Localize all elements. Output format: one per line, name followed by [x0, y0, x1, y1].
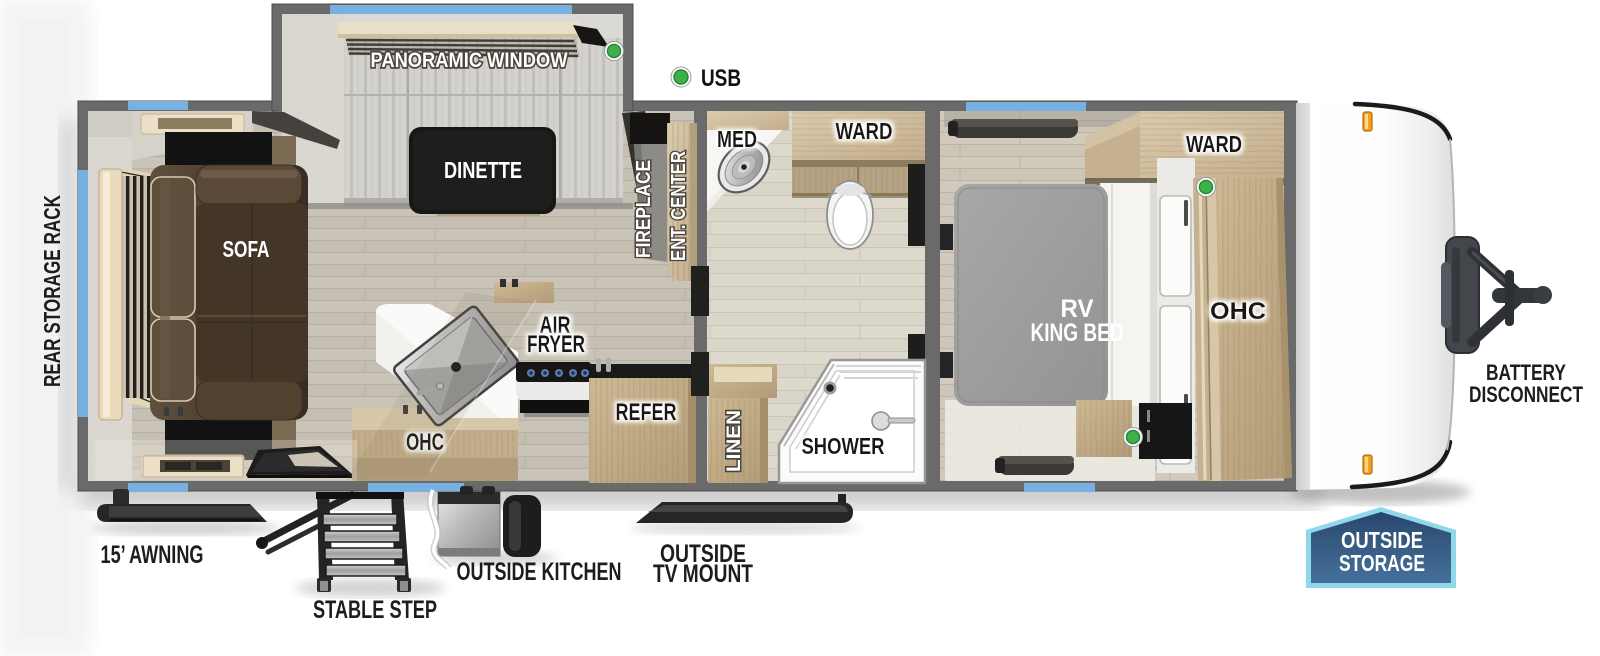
- svg-text:TV MOUNT: TV MOUNT: [653, 560, 753, 588]
- svg-text:OHC: OHC: [1210, 298, 1266, 325]
- svg-text:MED: MED: [717, 126, 757, 152]
- svg-text:PANORAMIC WINDOW: PANORAMIC WINDOW: [371, 49, 568, 72]
- svg-text:REFER: REFER: [616, 399, 677, 426]
- svg-text:15’ AWNING: 15’ AWNING: [101, 541, 204, 569]
- svg-text:DINETTE: DINETTE: [444, 157, 522, 183]
- svg-text:KING BED: KING BED: [1031, 319, 1124, 347]
- svg-text:WARD: WARD: [1186, 131, 1242, 157]
- svg-text:USB: USB: [701, 65, 741, 92]
- svg-text:FIREPLACE: FIREPLACE: [633, 160, 655, 258]
- svg-text:LINEN: LINEN: [724, 410, 745, 472]
- svg-text:WARD: WARD: [836, 118, 893, 144]
- svg-text:DISCONNECT: DISCONNECT: [1469, 382, 1583, 407]
- svg-text:STABLE STEP: STABLE STEP: [313, 596, 437, 624]
- svg-text:SHOWER: SHOWER: [802, 433, 885, 459]
- svg-text:STORAGE: STORAGE: [1339, 550, 1425, 576]
- svg-text:REAR STORAGE RACK: REAR STORAGE RACK: [39, 195, 65, 387]
- svg-text:OUTSIDE KITCHEN: OUTSIDE KITCHEN: [457, 558, 622, 586]
- svg-text:SOFA: SOFA: [223, 236, 270, 262]
- svg-text:FRYER: FRYER: [527, 331, 585, 358]
- svg-text:ENT. CENTER: ENT. CENTER: [668, 151, 690, 261]
